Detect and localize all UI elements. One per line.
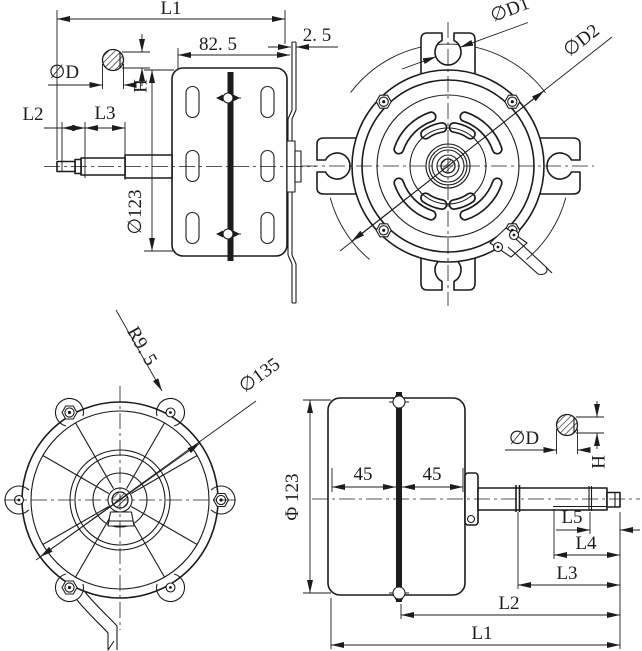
lead-wire bbox=[490, 228, 552, 274]
dim-l1-label: L1 bbox=[471, 623, 492, 644]
dim-phi123-label: Φ 123 bbox=[282, 473, 303, 520]
dim-l5-label: L5 bbox=[561, 507, 582, 528]
view-rear: R9. 5 ∅135 bbox=[4, 310, 284, 650]
dim-l2-label: L2 bbox=[498, 593, 519, 614]
dim-h-label: H bbox=[129, 79, 150, 93]
dim-dia123-label: ∅123 bbox=[125, 189, 146, 234]
ear-bolt bbox=[62, 406, 77, 419]
rear-hub bbox=[108, 488, 134, 526]
shaft-section-detail: ∅D H bbox=[505, 401, 608, 469]
dim-l2-label: L2 bbox=[22, 104, 43, 125]
view-front: ∅D2 ∅D1 bbox=[302, 0, 612, 306]
dim-h-label: H bbox=[587, 455, 608, 469]
ear-hole bbox=[166, 583, 175, 592]
dim-r95-label: R9. 5 bbox=[122, 323, 161, 369]
dim-825-label: 82. 5 bbox=[199, 34, 237, 55]
ear-hole bbox=[166, 408, 175, 417]
dim-diaD2-label: ∅D2 bbox=[559, 20, 603, 61]
drawing-canvas: L1 82. 5 2. 5 ∅D H L2 L3 bbox=[0, 0, 642, 651]
dim-45-left-label: 45 bbox=[354, 464, 373, 485]
dim-dia135-label: ∅135 bbox=[235, 354, 284, 397]
dim-45-right-label: 45 bbox=[423, 464, 442, 485]
dim-l1-label: L1 bbox=[160, 0, 181, 19]
motor-technical-drawing: L1 82. 5 2. 5 ∅D H L2 L3 bbox=[0, 0, 642, 651]
view-side-left: L1 82. 5 2. 5 ∅D H L2 L3 bbox=[22, 0, 338, 303]
view-side-right: ∅D H 45 45 Φ 123 L5 L4 L3 bbox=[282, 392, 640, 649]
dim-diaD-label: ∅D bbox=[509, 428, 539, 449]
dim-l3-label: L3 bbox=[556, 563, 577, 584]
dim-diaD-label: ∅D bbox=[49, 62, 79, 83]
ear-bolt bbox=[62, 581, 77, 594]
dim-diaD1-label: ∅D1 bbox=[488, 0, 533, 27]
dim-l4-label: L4 bbox=[575, 533, 597, 554]
dim-l3-label: L3 bbox=[94, 103, 115, 124]
shaft-right bbox=[478, 485, 620, 512]
dim-25-label: 2. 5 bbox=[303, 25, 332, 46]
wire-exit bbox=[77, 592, 117, 650]
